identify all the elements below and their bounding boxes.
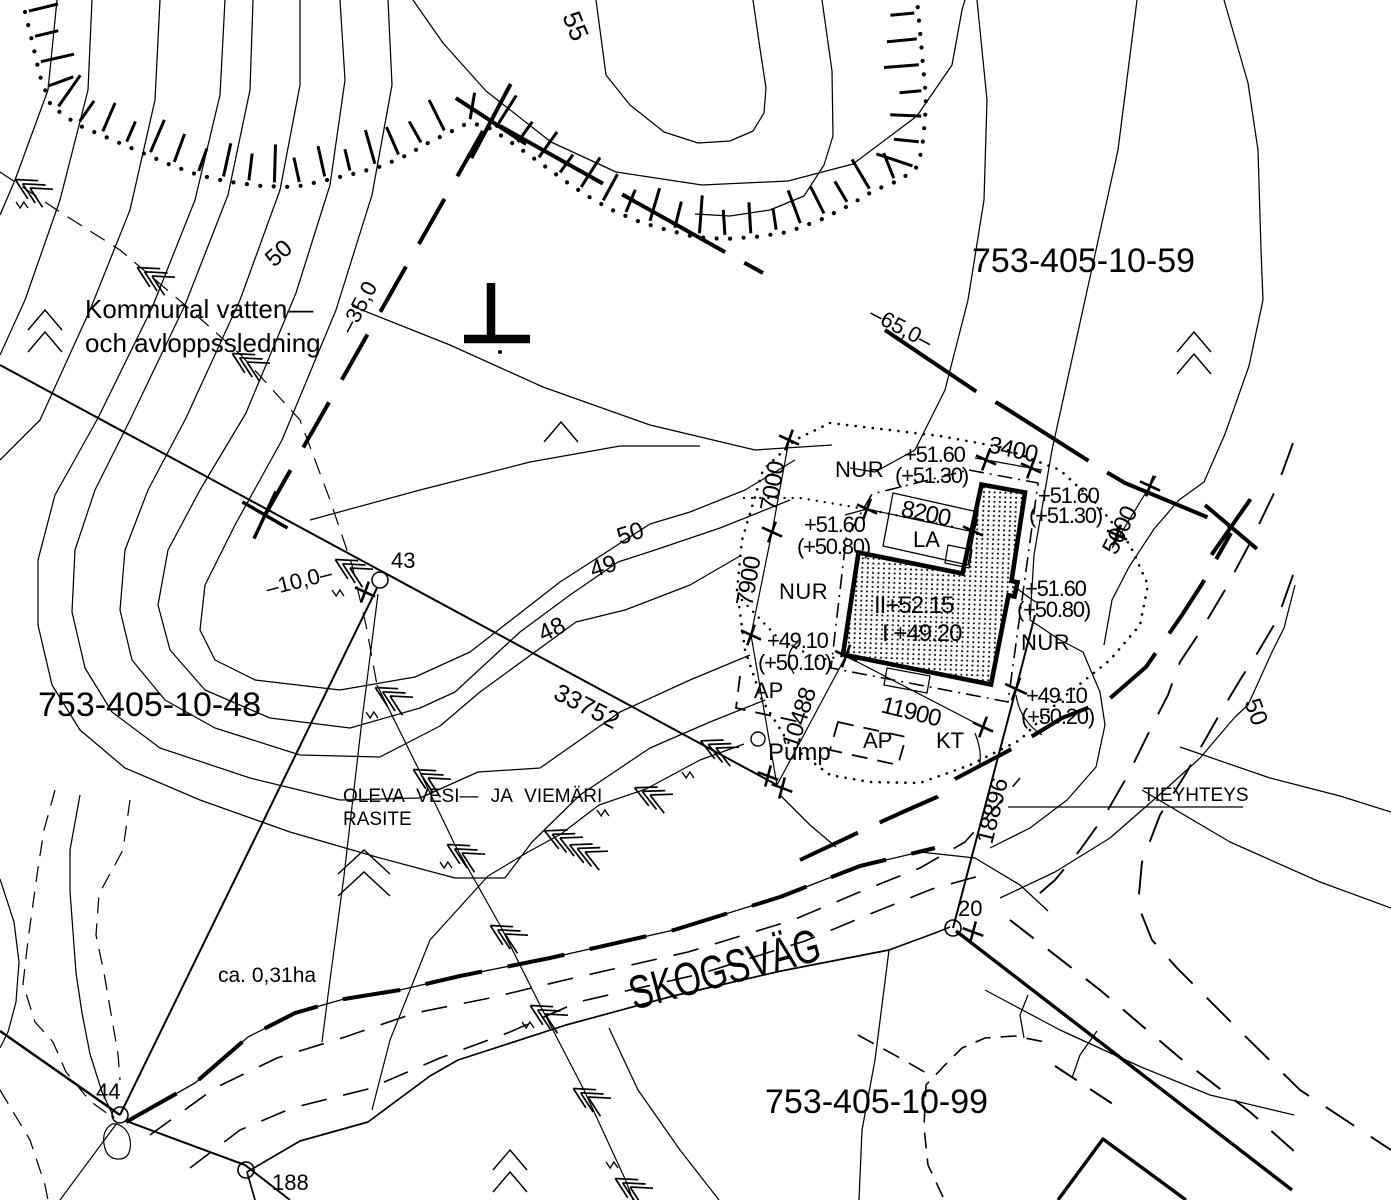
svg-text:188: 188 xyxy=(272,1170,309,1195)
svg-text:NUR: NUR xyxy=(1021,630,1070,655)
svg-text:753-405-10-99: 753-405-10-99 xyxy=(765,1083,988,1121)
svg-text:44: 44 xyxy=(96,1079,120,1104)
svg-text:(+51.30): (+51.30) xyxy=(895,463,968,488)
svg-text:ca. 0,31ha: ca. 0,31ha xyxy=(218,964,316,987)
svg-text:AP: AP xyxy=(754,678,783,703)
svg-text:20: 20 xyxy=(958,896,982,921)
svg-text:(+50.10): (+50.10) xyxy=(758,650,831,675)
svg-text:753-405-10-59: 753-405-10-59 xyxy=(972,242,1195,280)
svg-text:KT: KT xyxy=(936,728,964,753)
svg-text:(+50.80): (+50.80) xyxy=(1017,597,1090,622)
svg-text:(+50.20): (+50.20) xyxy=(1021,704,1094,729)
svg-text:NUR: NUR xyxy=(835,457,884,482)
svg-text:LA: LA xyxy=(913,527,940,552)
svg-text:NUR: NUR xyxy=(779,579,828,604)
svg-text:I +49.20: I +49.20 xyxy=(882,620,962,647)
svg-text:TIEYHTEYS: TIEYHTEYS xyxy=(1143,785,1249,806)
svg-text:AP: AP xyxy=(863,728,892,753)
svg-text:43: 43 xyxy=(391,548,415,573)
svg-text:OLEVA VESI— JA VIEMÄRI: OLEVA VESI— JA VIEMÄRI xyxy=(343,786,602,807)
svg-text:(+50.80): (+50.80) xyxy=(797,534,870,559)
svg-text:II+52.15: II+52.15 xyxy=(874,592,954,619)
svg-text:753-405-10-48: 753-405-10-48 xyxy=(38,686,261,724)
svg-text:RASITE: RASITE xyxy=(343,809,412,830)
svg-text:Kommunal vatten—: Kommunal vatten— xyxy=(85,294,313,324)
svg-text:(+51.30): (+51.30) xyxy=(1029,503,1102,528)
svg-text:och avloppssledning: och avloppssledning xyxy=(85,328,321,358)
